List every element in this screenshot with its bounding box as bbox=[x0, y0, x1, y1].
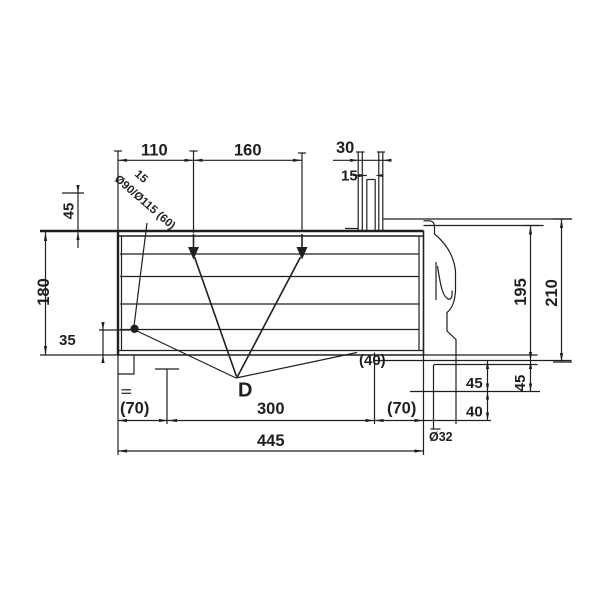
svg-text:30: 30 bbox=[336, 139, 354, 157]
svg-text:(70): (70) bbox=[387, 400, 416, 418]
svg-text:210: 210 bbox=[543, 279, 561, 307]
svg-text:160: 160 bbox=[234, 142, 262, 160]
svg-text:45: 45 bbox=[61, 203, 78, 220]
svg-text:300: 300 bbox=[257, 400, 285, 418]
svg-text:40: 40 bbox=[466, 404, 483, 421]
svg-text:D: D bbox=[238, 380, 252, 402]
svg-text:35: 35 bbox=[59, 332, 76, 349]
svg-text:(70): (70) bbox=[120, 400, 149, 418]
svg-text:Ø32: Ø32 bbox=[429, 430, 453, 444]
svg-text:180: 180 bbox=[35, 278, 53, 306]
svg-text:(40): (40) bbox=[359, 352, 386, 369]
svg-text:45: 45 bbox=[512, 375, 529, 392]
svg-text:15: 15 bbox=[341, 168, 358, 185]
svg-text:110: 110 bbox=[141, 142, 168, 160]
svg-text:195: 195 bbox=[512, 278, 530, 306]
svg-text:15: 15 bbox=[132, 168, 150, 186]
svg-text:445: 445 bbox=[257, 432, 285, 450]
svg-text:45: 45 bbox=[466, 375, 483, 392]
